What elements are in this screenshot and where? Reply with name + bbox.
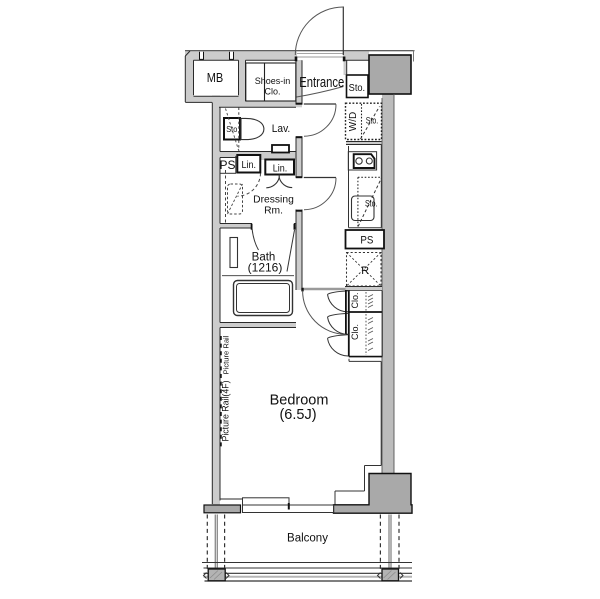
svg-text:Sto.: Sto. xyxy=(365,199,378,210)
svg-text:(1216): (1216) xyxy=(248,261,283,275)
svg-text:Sto.: Sto. xyxy=(366,116,379,127)
svg-text:PS: PS xyxy=(360,235,373,247)
svg-text:Lin.: Lin. xyxy=(242,160,257,171)
svg-text:Clo.: Clo. xyxy=(264,87,280,97)
svg-text:Rm.: Rm. xyxy=(264,206,283,217)
svg-text:MB: MB xyxy=(207,70,224,85)
svg-text:Lav.: Lav. xyxy=(272,123,291,135)
svg-text:PS: PS xyxy=(219,158,235,172)
svg-text:R: R xyxy=(361,265,369,277)
svg-text:Lin.: Lin. xyxy=(273,163,288,174)
svg-text:Clo.: Clo. xyxy=(350,324,361,340)
svg-text:Picture Rail(4F): Picture Rail(4F) xyxy=(221,380,231,441)
svg-text:Balcony: Balcony xyxy=(287,533,328,545)
svg-text:Sto.: Sto. xyxy=(349,83,366,94)
svg-text:Dressing: Dressing xyxy=(253,195,294,206)
svg-text:Shoes-in: Shoes-in xyxy=(255,76,291,86)
svg-text:W/D: W/D xyxy=(348,112,359,131)
svg-text:Entrance: Entrance xyxy=(299,74,344,91)
svg-text:Clo.: Clo. xyxy=(350,293,361,309)
svg-text:Picture Rail: Picture Rail xyxy=(222,335,231,374)
svg-text:Bedroom: Bedroom xyxy=(270,392,329,408)
svg-text:(6.5J): (6.5J) xyxy=(279,407,316,423)
svg-text:Sto: Sto xyxy=(226,124,237,134)
